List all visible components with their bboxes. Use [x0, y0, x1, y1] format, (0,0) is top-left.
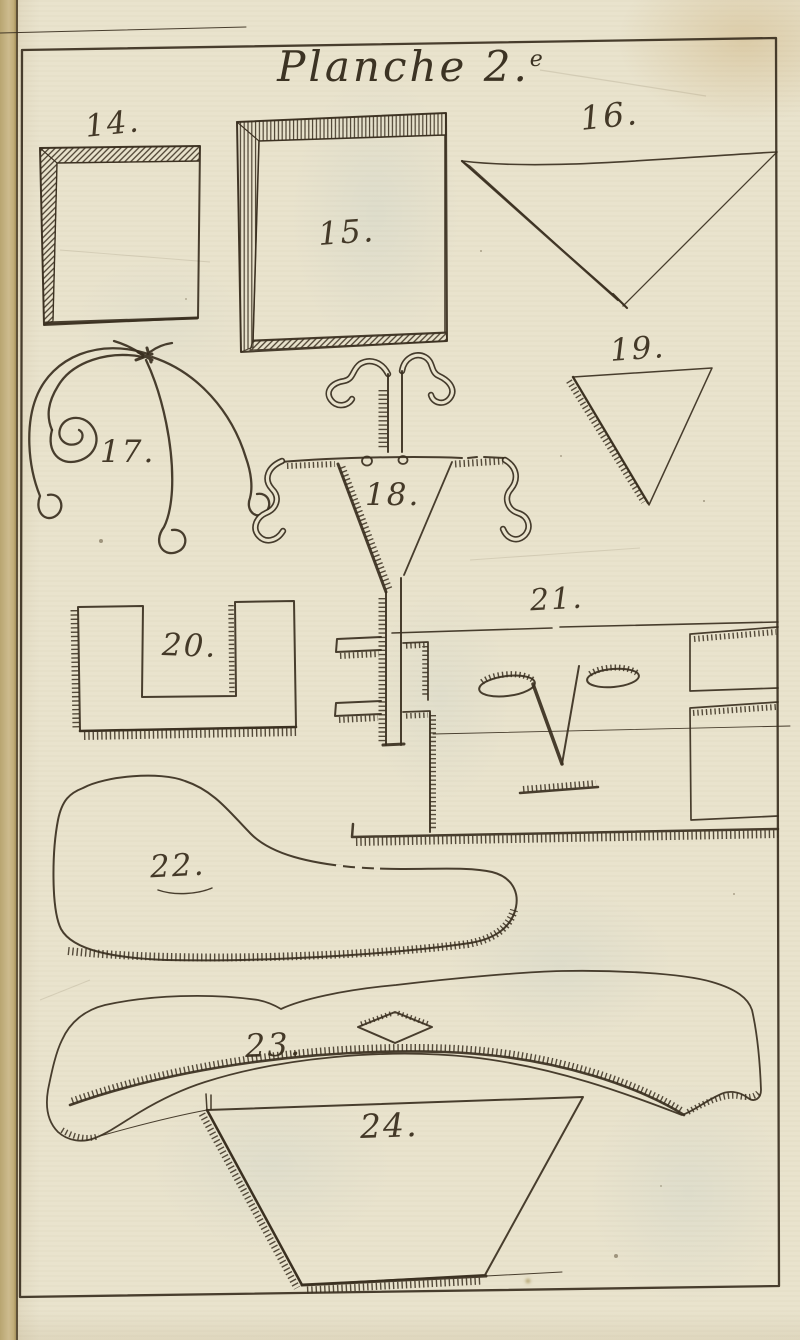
figure-18-label: 18.: [365, 477, 420, 513]
scanned-plate-page: Planche 2.e 14. 15. 16. 17. 18. 19. 20. …: [0, 0, 800, 1340]
figure-23-label: 23.: [244, 1025, 302, 1065]
figure-17-label: 17.: [100, 434, 155, 470]
plate-title: Planche 2.e: [240, 42, 580, 91]
figure-24-label: 24.: [359, 1105, 419, 1146]
figure-21-band: [352, 622, 790, 842]
plate-title-main: Planche 2.: [277, 42, 530, 91]
figure-22-label: 22.: [149, 847, 206, 886]
figure-14-label: 14.: [83, 103, 142, 145]
figure-21-label: 21.: [529, 581, 584, 619]
figure-19-label: 19.: [609, 329, 667, 369]
figure-16-triangle: [462, 152, 777, 308]
figure-14-square: [40, 146, 200, 325]
plate-title-sup: e: [530, 47, 543, 72]
plate-scratches: [40, 70, 706, 1000]
figure-19-triangle: [569, 368, 712, 505]
figure-22-sole: [53, 776, 516, 961]
figure-20-bracket: [74, 601, 298, 736]
figure-20-label: 20.: [161, 627, 218, 665]
figure-15-label: 15.: [317, 211, 376, 253]
figure-16-label: 16.: [578, 93, 640, 138]
